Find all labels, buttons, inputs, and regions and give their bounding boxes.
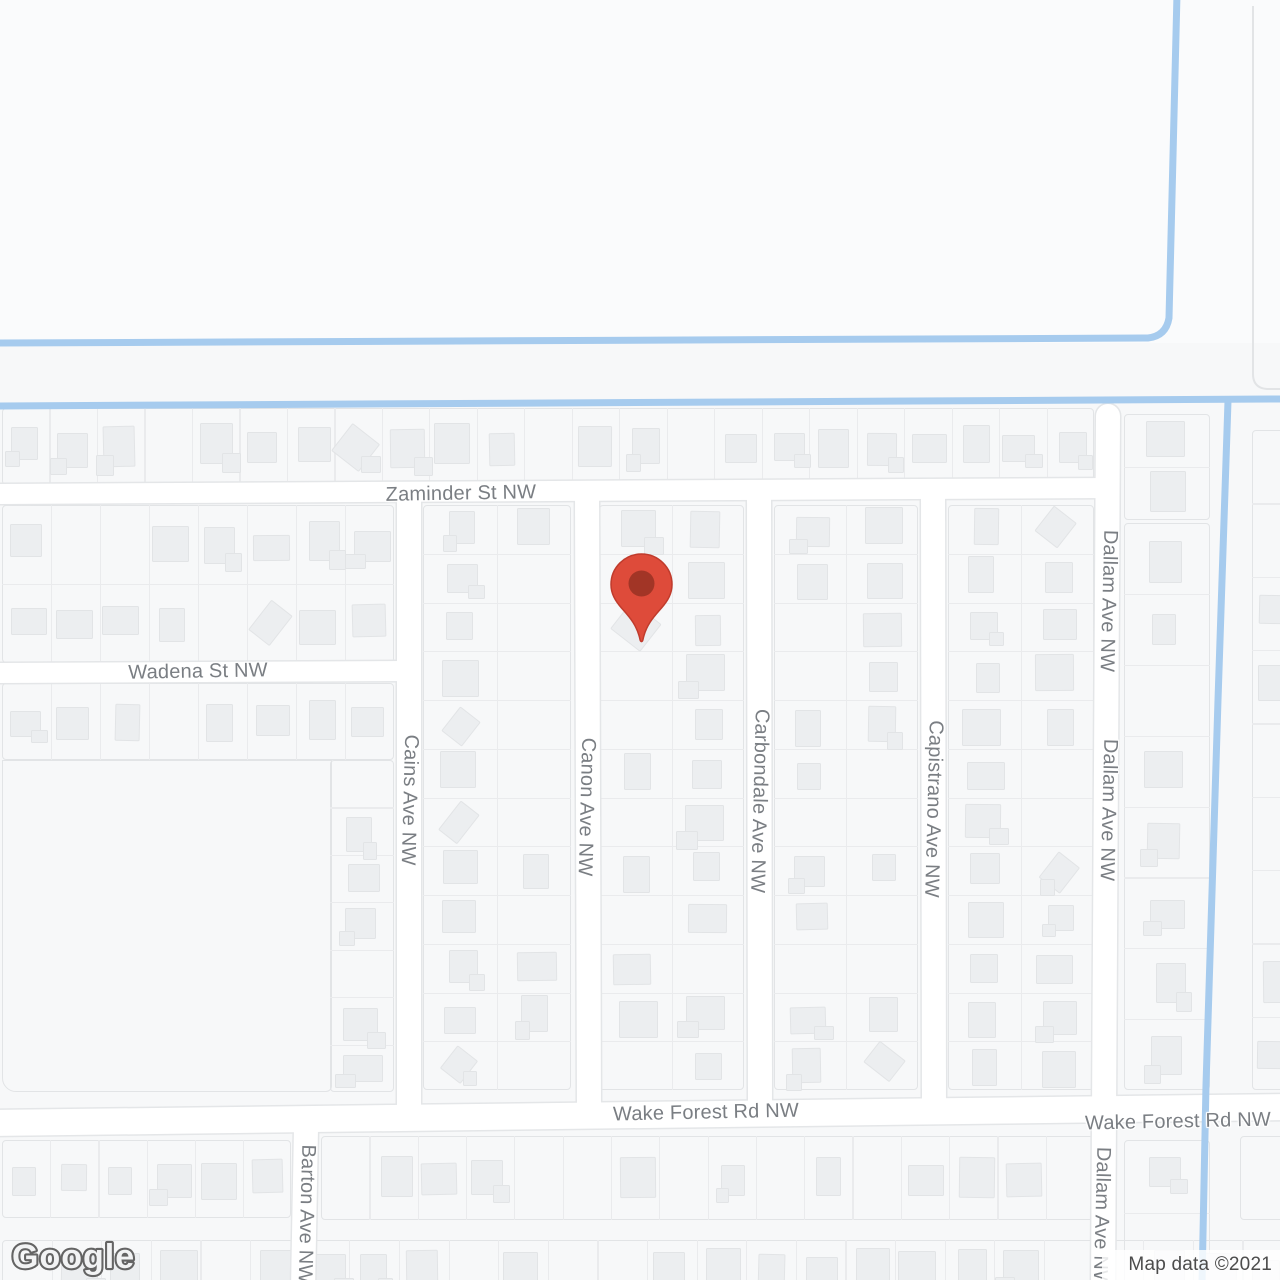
street-label-wake-forest-rd-nw: Wake Forest Rd NW (613, 1100, 799, 1127)
street-label-dallam-ave-nw: Dallam Ave NW (1095, 739, 1122, 882)
map-canvas[interactable]: Zaminder St NWWadena St NWWake Forest Rd… (0, 0, 1280, 1280)
street-label-zaminder-st-nw: Zaminder St NW (386, 481, 537, 507)
map-marker-pin[interactable] (609, 552, 674, 644)
marker-inner-dot (629, 571, 655, 597)
google-logo-text: Google (12, 1238, 135, 1276)
marker-balloon[interactable] (611, 554, 672, 642)
attribution-text: Map data ©2021 (1128, 1254, 1272, 1276)
google-logo[interactable]: Google (8, 1234, 158, 1280)
street-label-wadena-st-nw: Wadena St NW (128, 659, 268, 684)
street-label-barton-ave-nw: Barton Ave NW (293, 1144, 320, 1280)
attribution-bar: Map data ©2021 (1102, 1250, 1280, 1280)
street-label-capistrano-ave-nw: Capistrano Ave NW (919, 720, 947, 898)
street-label-wake-forest-rd-nw: Wake Forest Rd NW (1085, 1109, 1271, 1136)
street-label-cains-ave-nw: Cains Ave NW (396, 734, 422, 866)
street-label-canon-ave-nw: Canon Ave NW (573, 737, 600, 876)
street-label-dallam-ave-nw: Dallam Ave NW (1095, 530, 1122, 673)
street-label-carbondale-ave-nw: Carbondale Ave NW (745, 709, 773, 894)
